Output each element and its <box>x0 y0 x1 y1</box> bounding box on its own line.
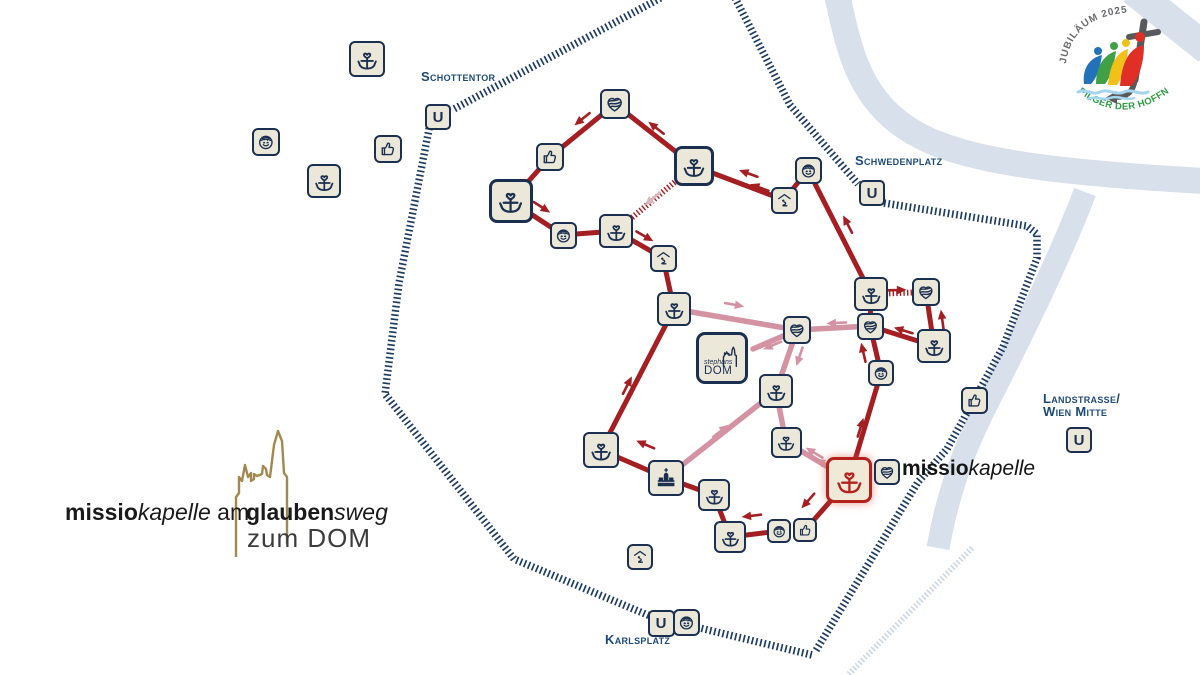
label-schwedenplatz: Schwedenplatz <box>855 154 942 167</box>
footer-missio: missio <box>65 499 138 525</box>
missiokapelle-bold: missio <box>902 457 969 480</box>
footer-logo-line1: missiokapelle am <box>65 499 249 526</box>
cross-anchor-heart-icon <box>495 185 526 216</box>
station-smiley <box>767 519 791 543</box>
cross-anchor-heart-icon <box>764 379 789 404</box>
station-cross <box>489 179 533 223</box>
station-pray <box>627 544 653 570</box>
jubilee-top-arc-text: JUBILÄUM 2025 <box>1058 6 1128 64</box>
label-landstrasse-wien-mitte: Landstrasse/Wien Mitte <box>1043 392 1120 418</box>
station-cross <box>583 432 619 468</box>
smiley-icon <box>799 161 818 180</box>
station-thumb <box>961 387 988 414</box>
label-schottentor: Schottentor <box>421 70 495 83</box>
station-heart <box>857 313 884 340</box>
cross-anchor-heart-icon <box>833 464 866 497</box>
station-cross <box>349 41 385 77</box>
prayer-station-icon <box>654 249 673 268</box>
station-heart <box>874 459 900 485</box>
label-landstrasse-line2: Wien Mitte <box>1043 404 1107 419</box>
ringstrasse-boundary <box>385 0 1037 655</box>
missiokapelle-italic: kapelle <box>969 457 1036 480</box>
station-thumb <box>793 518 817 542</box>
station-cross <box>698 479 730 511</box>
striped-heart-icon <box>787 320 807 340</box>
jubilee-pilgrim-figures <box>1084 32 1145 86</box>
station-heart <box>912 278 940 306</box>
stephansdom-box-text: stephansDOM <box>704 356 732 375</box>
footer-logo-line3: zum DOM <box>247 523 371 554</box>
prayer-station-icon <box>631 548 649 566</box>
smiley-icon <box>872 364 890 382</box>
station-smiley <box>868 360 894 386</box>
footer-kapelle: kapelle <box>138 499 211 525</box>
thumbs-up-icon <box>797 522 813 538</box>
cross-anchor-heart-icon <box>662 297 687 322</box>
station-heart <box>783 316 811 344</box>
footer-sweg: sweg <box>334 499 388 525</box>
station-smiley <box>252 128 280 156</box>
footer-logo-line2: glaubensweg <box>246 499 388 526</box>
station-church <box>648 460 684 496</box>
station-smiley <box>673 609 700 636</box>
station-thumb <box>374 135 402 163</box>
station-u-bahn: U <box>425 104 451 130</box>
striped-heart-icon <box>861 317 880 336</box>
smiley-icon <box>771 523 787 539</box>
cross-anchor-heart-icon <box>775 431 797 453</box>
cross-anchor-heart-icon <box>312 169 337 194</box>
cross-anchor-heart-icon <box>588 437 614 463</box>
station-u-bahn: U <box>648 610 675 637</box>
footer-glauben: glauben <box>246 499 334 525</box>
smiley-icon <box>256 132 276 152</box>
station-u-bahn: U <box>1066 427 1092 453</box>
thumbs-up-icon <box>540 147 560 167</box>
station-smiley <box>550 222 577 249</box>
thumbs-up-icon <box>965 391 984 410</box>
station-cross <box>854 277 888 311</box>
station-cross <box>759 374 793 408</box>
cross-anchor-heart-icon <box>354 46 380 72</box>
striped-heart-icon <box>878 463 896 481</box>
cross-anchor-heart-icon <box>922 334 947 359</box>
church-icon <box>653 465 679 491</box>
smiley-icon <box>677 613 696 632</box>
striped-heart-icon <box>916 282 936 302</box>
station-heart <box>600 89 630 119</box>
cross-anchor-heart-icon <box>859 282 884 307</box>
station-cross-missio <box>826 457 872 503</box>
station-cross <box>657 292 691 326</box>
striped-heart-icon <box>604 93 625 114</box>
cross-anchor-heart-icon <box>719 526 742 549</box>
label-missiokapelle: missiokapelle <box>902 457 1035 481</box>
station-cross <box>599 214 633 248</box>
station-pray <box>650 245 677 272</box>
station-u-bahn: U <box>859 180 885 206</box>
station-thumb <box>536 143 564 171</box>
cross-anchor-heart-icon <box>604 219 629 244</box>
cross-anchor-heart-icon <box>703 484 726 507</box>
station-smiley <box>795 157 822 184</box>
station-cross <box>674 146 714 186</box>
footer-am: am <box>211 499 249 525</box>
glaubensweg-map: Schottentor Schwedenplatz Karlsplatz Lan… <box>0 0 1200 675</box>
station-cross <box>771 427 802 458</box>
station-dom: stephansDOM <box>696 332 748 384</box>
prayer-station-icon <box>775 191 794 210</box>
thumbs-up-icon <box>378 139 398 159</box>
station-pray <box>771 187 798 214</box>
station-cross <box>307 164 341 198</box>
jubilee-2025-logo: JUBILÄUM 2025 PILGER DER HOFFNUNG <box>1056 6 1194 130</box>
smiley-icon <box>554 226 573 245</box>
cross-anchor-heart-icon <box>680 152 708 180</box>
station-cross <box>714 521 746 553</box>
station-cross <box>917 329 951 363</box>
